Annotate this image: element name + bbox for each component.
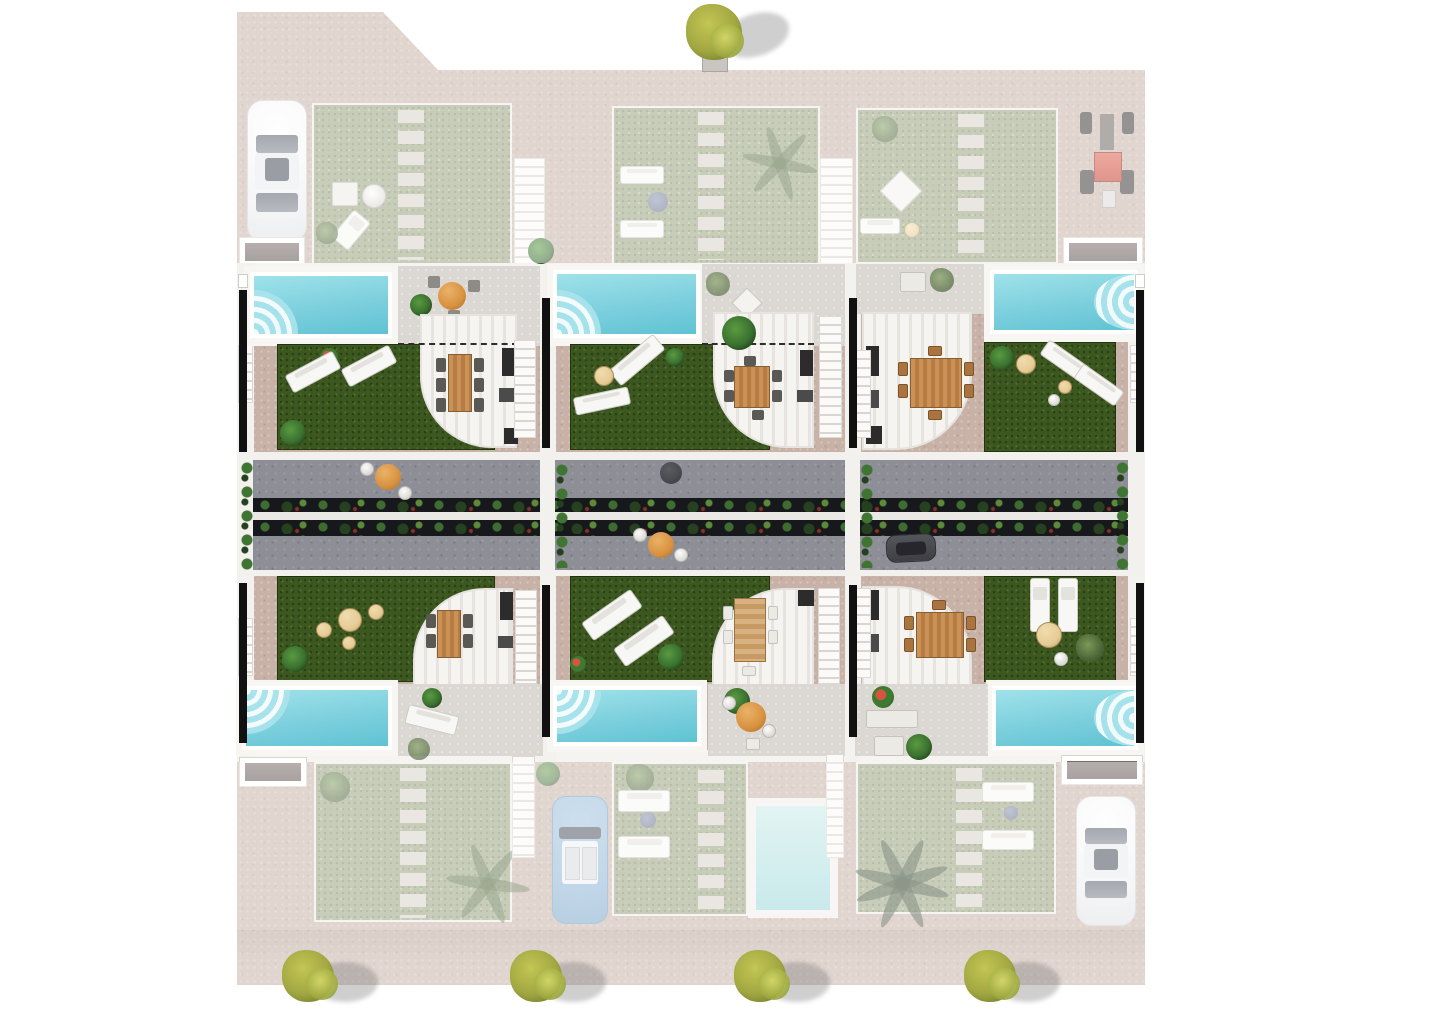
- porch-bottom-right: [1062, 756, 1142, 784]
- plant: [626, 764, 654, 792]
- stepping-stones: [698, 770, 724, 910]
- garden-stairs-2: [820, 158, 853, 266]
- potted-plant: [570, 656, 586, 672]
- bistro-table: [438, 282, 466, 310]
- stepping-stones: [698, 112, 724, 260]
- dining-table: [448, 354, 472, 412]
- boundary-dashed: [702, 343, 814, 345]
- shrub: [280, 420, 306, 446]
- kitchen-unit: [797, 390, 813, 402]
- round-table: [648, 192, 668, 212]
- kitchen-unit: [498, 636, 513, 648]
- street-tree: [960, 946, 1070, 1012]
- boundary-dashed: [398, 343, 518, 345]
- chair: [398, 486, 412, 500]
- chair: [468, 280, 480, 292]
- palm-tree: [742, 124, 818, 200]
- sun-lounger: [860, 218, 900, 234]
- stool: [746, 738, 760, 750]
- wall-cap: [238, 274, 248, 288]
- plant: [316, 222, 338, 244]
- plant-column: [240, 460, 254, 570]
- stepping-stones: [398, 110, 424, 260]
- bench: [900, 272, 926, 292]
- plant: [906, 734, 932, 760]
- white-car-bottom: [1076, 796, 1136, 926]
- small-tree: [930, 268, 954, 292]
- villa4-stairs: [515, 590, 537, 684]
- villa1-stairs: [514, 340, 536, 438]
- dining-table: [734, 598, 766, 662]
- street-planter-lower: [253, 520, 1128, 536]
- ball: [1054, 652, 1068, 666]
- stepping-stones: [958, 114, 984, 260]
- villa6-pool: [992, 686, 1138, 750]
- pouf: [368, 604, 384, 620]
- kitchen-counter: [800, 350, 813, 376]
- dark-chair: [660, 462, 682, 484]
- blue-car: [552, 796, 608, 924]
- wall-cap: [1135, 274, 1145, 288]
- chair: [428, 276, 440, 288]
- front-pool: [748, 798, 838, 918]
- street-bistro-table: [375, 464, 401, 490]
- chair: [360, 462, 374, 476]
- chair: [762, 724, 776, 738]
- party-wall-bar: [849, 298, 857, 448]
- plant: [320, 772, 350, 802]
- pouf: [1058, 380, 1072, 394]
- round-table: [640, 812, 656, 828]
- porch-top-right: [1064, 238, 1142, 266]
- street-planter-upper: [253, 498, 1128, 512]
- plant-column: [861, 462, 873, 568]
- ball: [1048, 394, 1060, 406]
- street-tree: [506, 946, 616, 1012]
- villa5-stairs: [818, 588, 840, 684]
- villa5-pool: [553, 686, 701, 746]
- party-wall-bar: [239, 290, 247, 452]
- party-wall-bar: [542, 585, 550, 737]
- sun-lounger: [620, 220, 664, 238]
- pool-steps: [254, 290, 298, 334]
- plant: [422, 688, 442, 708]
- dining-table: [734, 366, 770, 408]
- street-separator: [540, 456, 555, 572]
- dining-table: [437, 610, 461, 658]
- pool-steps: [1094, 274, 1134, 330]
- plant: [872, 116, 898, 142]
- sun-lounger: [618, 836, 670, 858]
- pouf: [904, 222, 920, 238]
- plant: [1076, 634, 1104, 662]
- sun-lounger: [620, 166, 664, 184]
- spacer: [503, 590, 505, 592]
- plant: [408, 738, 430, 760]
- pouf: [342, 636, 356, 650]
- sun-lounger: [982, 782, 1034, 802]
- tractor: [1080, 112, 1134, 208]
- villa2-pool: [553, 270, 700, 338]
- pouf: [594, 366, 614, 386]
- street-lane-lower: [253, 536, 1128, 570]
- street-bistro-table: [648, 532, 674, 558]
- front-stairs-1: [512, 756, 535, 858]
- white-car-top: [247, 100, 307, 242]
- street-tree: [730, 946, 840, 1012]
- wreath-plant: [706, 272, 730, 296]
- pouf: [338, 608, 362, 632]
- dining-table: [916, 612, 964, 658]
- street-median: [253, 512, 1128, 520]
- chair: [674, 548, 688, 562]
- sun-lounger: [982, 830, 1034, 850]
- palm-tree-large: [854, 834, 950, 930]
- kitchen-unit: [499, 388, 515, 402]
- low-table: [874, 736, 904, 756]
- potted-plant: [872, 686, 894, 708]
- bench: [866, 710, 918, 728]
- site-plan-render: [0, 0, 1440, 1024]
- chair: [633, 528, 647, 542]
- pouf: [316, 622, 332, 638]
- party-wall-bar: [542, 298, 550, 448]
- shrub: [528, 238, 554, 264]
- windshield: [256, 135, 298, 153]
- club-chair: [332, 182, 358, 206]
- villa1-pool: [250, 272, 392, 338]
- round-side-table: [362, 184, 386, 208]
- stepping-stones: [400, 768, 426, 918]
- party-wall-bar: [1136, 290, 1144, 452]
- villa3-pool: [990, 270, 1138, 334]
- sunroof: [265, 158, 288, 180]
- plant: [658, 644, 684, 670]
- kitchen-unit: [798, 590, 814, 606]
- street-tree-top: [684, 2, 804, 78]
- porch-top-left: [240, 238, 304, 266]
- plant: [666, 348, 684, 366]
- large-plant: [722, 316, 756, 350]
- plant: [410, 294, 432, 316]
- rear-window: [256, 193, 298, 211]
- party-wall-bar: [239, 583, 247, 743]
- plant: [282, 646, 308, 672]
- shrub: [536, 762, 560, 786]
- pouf: [1036, 622, 1062, 648]
- pouf: [1016, 354, 1036, 374]
- porch-bottom-left: [240, 758, 306, 786]
- round-table: [1004, 806, 1018, 820]
- sun-lounger: [618, 790, 670, 812]
- street-separator: [845, 456, 860, 572]
- front-stairs-2: [826, 754, 844, 858]
- stepping-stones: [956, 768, 982, 910]
- dark-car: [885, 533, 936, 564]
- villa2-stairs: [819, 316, 842, 438]
- chair: [722, 696, 736, 710]
- plant: [990, 346, 1014, 370]
- plant-column: [556, 462, 568, 568]
- party-wall-bar: [1136, 583, 1144, 743]
- villa4-pool: [242, 686, 392, 750]
- party-wall-bar: [849, 585, 857, 737]
- kitchen-counter: [500, 592, 513, 620]
- plant-column: [1116, 460, 1129, 570]
- sun-lounger: [1058, 578, 1078, 632]
- street-tree: [278, 946, 388, 1012]
- dining-table: [910, 358, 962, 408]
